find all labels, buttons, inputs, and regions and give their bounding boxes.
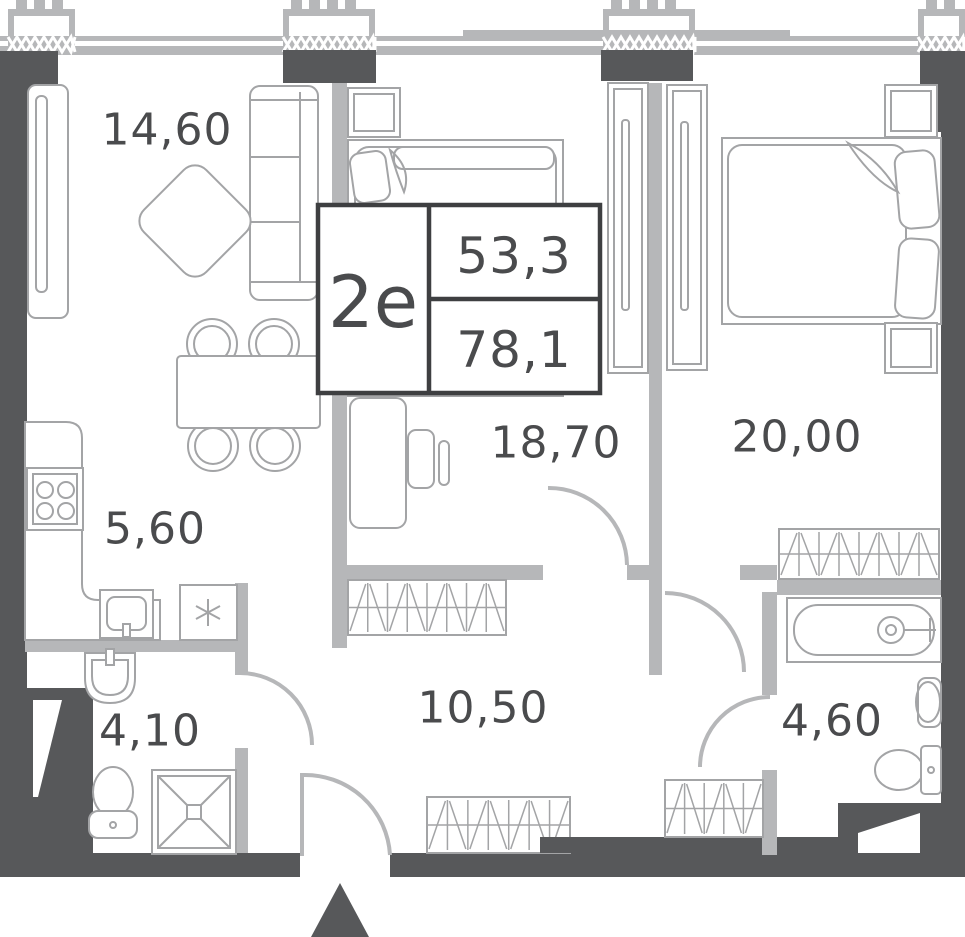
pilaster-icon xyxy=(603,0,695,52)
desk-icon xyxy=(350,398,406,528)
toilet-icon xyxy=(89,767,137,838)
shower-icon xyxy=(152,770,236,854)
dining-set-icon xyxy=(177,319,320,471)
toilet-icon xyxy=(875,746,941,794)
sofa-icon xyxy=(250,86,318,300)
wardrobe-hatched-icon xyxy=(665,780,763,837)
floor-plan-page: 2е 53,3 78,1 14,60 5,60 4,10 10,50 18,70… xyxy=(0,0,965,937)
pilaster-icon xyxy=(283,0,375,52)
pilaster-icon xyxy=(8,0,75,52)
room-area-bedroom1: 18,70 xyxy=(491,418,622,469)
entrance-arrow-icon xyxy=(311,883,369,937)
living-area-value: 53,3 xyxy=(456,227,571,285)
bedroom-2 xyxy=(667,85,941,373)
stove-icon xyxy=(27,468,83,530)
room-area-bath-sm: 4,10 xyxy=(99,706,201,757)
nightstand-icon xyxy=(885,323,937,373)
sink-icon xyxy=(916,678,941,727)
bed-icon xyxy=(722,138,941,324)
wardrobe-icon xyxy=(608,83,648,373)
pilaster-icon xyxy=(918,0,965,52)
wardrobe-hatched-icon xyxy=(779,529,939,579)
room-area-bath-lg: 4,60 xyxy=(781,696,883,747)
sink-icon xyxy=(85,649,135,703)
room-area-living: 14,60 xyxy=(102,105,233,156)
wall-step xyxy=(540,837,658,853)
door-arc-bedroom-2 xyxy=(665,593,744,672)
coffee-table-icon xyxy=(133,159,257,283)
window-unit-icon xyxy=(28,85,68,318)
kitchen-sink-icon xyxy=(100,590,153,638)
facade-glazing xyxy=(0,30,965,55)
unit-info-box: 2е 53,3 78,1 xyxy=(318,205,600,393)
room-area-bedroom2: 20,00 xyxy=(732,412,863,463)
unit-type-label: 2е xyxy=(328,260,418,344)
nightstand-icon xyxy=(348,88,400,137)
wardrobe-icon xyxy=(667,85,707,370)
washing-machine-icon xyxy=(180,585,237,640)
floor-plan: 2е 53,3 78,1 14,60 5,60 4,10 10,50 18,70… xyxy=(0,0,965,937)
door-arc-bathroom-large xyxy=(700,697,770,767)
door-arc-bathroom-small xyxy=(240,673,312,745)
facade-pilasters xyxy=(8,0,965,52)
nightstand-icon xyxy=(885,85,937,137)
door-arc-bedroom-1 xyxy=(548,488,627,565)
door-arc-entrance xyxy=(302,775,390,855)
bathtub-icon xyxy=(787,598,941,662)
room-area-kitchen: 5,60 xyxy=(104,504,206,555)
room-area-hallway: 10,50 xyxy=(418,683,549,734)
total-area-value: 78,1 xyxy=(456,321,571,379)
desk-chair-icon xyxy=(408,430,449,488)
wardrobe-hatched-icon xyxy=(348,580,506,635)
